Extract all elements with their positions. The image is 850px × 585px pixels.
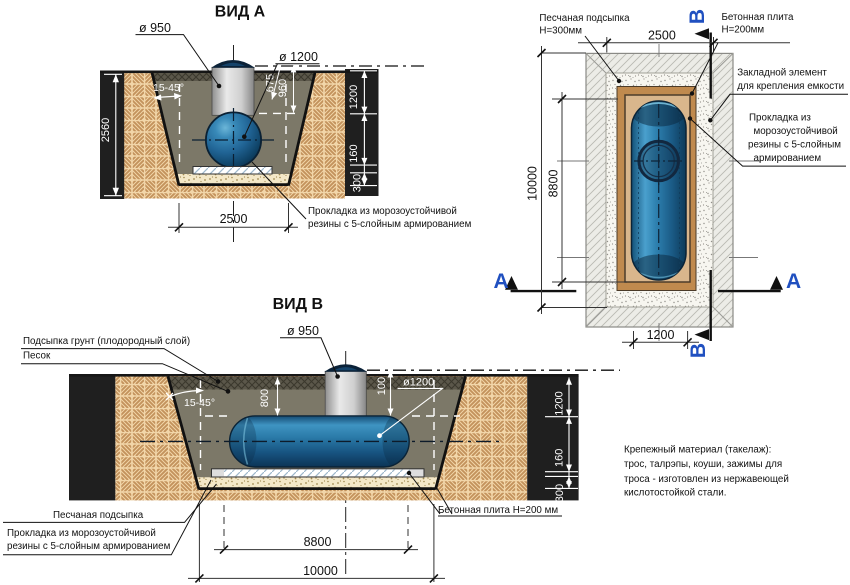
svg-text:Прокладка из морозоустойчивой: Прокладка из морозоустойчивой (308, 206, 457, 217)
svg-text:троса - изготовлен из нержавею: троса - изготовлен из нержавеющей (624, 474, 789, 485)
svg-text:Подсыпка грунт (плодородный сл: Подсыпка грунт (плодородный слой) (23, 336, 190, 347)
svg-text:Песчаная подсыпка: Песчаная подсыпка (53, 510, 144, 521)
svg-text:160: 160 (348, 144, 360, 162)
svg-text:Прокладка из: Прокладка из (749, 113, 811, 124)
svg-text:1200: 1200 (554, 391, 566, 415)
svg-text:Н=300мм: Н=300мм (539, 26, 582, 37)
svg-text:ø1200: ø1200 (403, 377, 434, 389)
svg-text:2500: 2500 (648, 29, 676, 43)
svg-text:300: 300 (554, 484, 566, 502)
svg-text:В: В (686, 9, 709, 24)
svg-text:300: 300 (352, 174, 364, 192)
svg-text:Крепежный материал (такелаж):: Крепежный материал (такелаж): (624, 445, 771, 456)
svg-text:ВИД А: ВИД А (215, 4, 266, 21)
svg-text:резины с 5-слойным армирование: резины с 5-слойным армированием (308, 219, 472, 230)
svg-text:А: А (494, 270, 509, 293)
svg-text:800: 800 (259, 389, 271, 407)
svg-text:морозоустойчивой: морозоустойчивой (754, 126, 838, 137)
svg-text:Бетонная плита Н=200 мм: Бетонная плита Н=200 мм (438, 505, 558, 516)
svg-text:2560: 2560 (100, 118, 112, 142)
svg-text:для крепления емкости: для крепления емкости (737, 81, 844, 92)
svg-text:15-45°: 15-45° (153, 82, 184, 94)
svg-text:1200: 1200 (647, 328, 675, 342)
svg-text:Прокладка из морозоустойчивой: Прокладка из морозоустойчивой (7, 528, 156, 539)
svg-text:Закладной элемент: Закладной элемент (737, 68, 827, 79)
svg-text:Н=200мм: Н=200мм (722, 25, 765, 36)
svg-text:160: 160 (554, 449, 566, 467)
svg-text:резины с 5-слойным: резины с 5-слойным (748, 140, 841, 151)
svg-text:1200: 1200 (348, 85, 360, 109)
svg-text:8800: 8800 (547, 170, 561, 198)
svg-text:ø 1200: ø 1200 (279, 50, 318, 64)
svg-text:трос, талрэпы, коуши, зажимы д: трос, талрэпы, коуши, зажимы для (624, 459, 782, 470)
svg-text:8800: 8800 (304, 535, 332, 549)
svg-text:армированием: армированием (754, 153, 822, 164)
svg-text:Бетонная плита: Бетонная плита (722, 12, 795, 23)
svg-text:960: 960 (277, 79, 289, 97)
svg-text:А: А (786, 270, 801, 293)
svg-text:В: В (687, 343, 710, 358)
svg-text:Песок: Песок (23, 351, 51, 362)
svg-text:15-45°: 15-45° (184, 397, 215, 409)
svg-text:ø 950: ø 950 (287, 324, 319, 338)
svg-text:100: 100 (376, 377, 388, 395)
svg-text:2500: 2500 (220, 212, 248, 226)
svg-text:ВИД В: ВИД В (273, 296, 323, 313)
svg-text:кислотостойкой стали.: кислотостойкой стали. (624, 488, 726, 499)
svg-text:10000: 10000 (303, 564, 338, 578)
svg-text:Песчаная подсыпка: Песчаная подсыпка (539, 13, 630, 24)
svg-text:10000: 10000 (526, 166, 540, 201)
svg-text:ø 950: ø 950 (139, 21, 171, 35)
svg-text:резины с 5-слойным армирование: резины с 5-слойным армированием (7, 541, 171, 552)
